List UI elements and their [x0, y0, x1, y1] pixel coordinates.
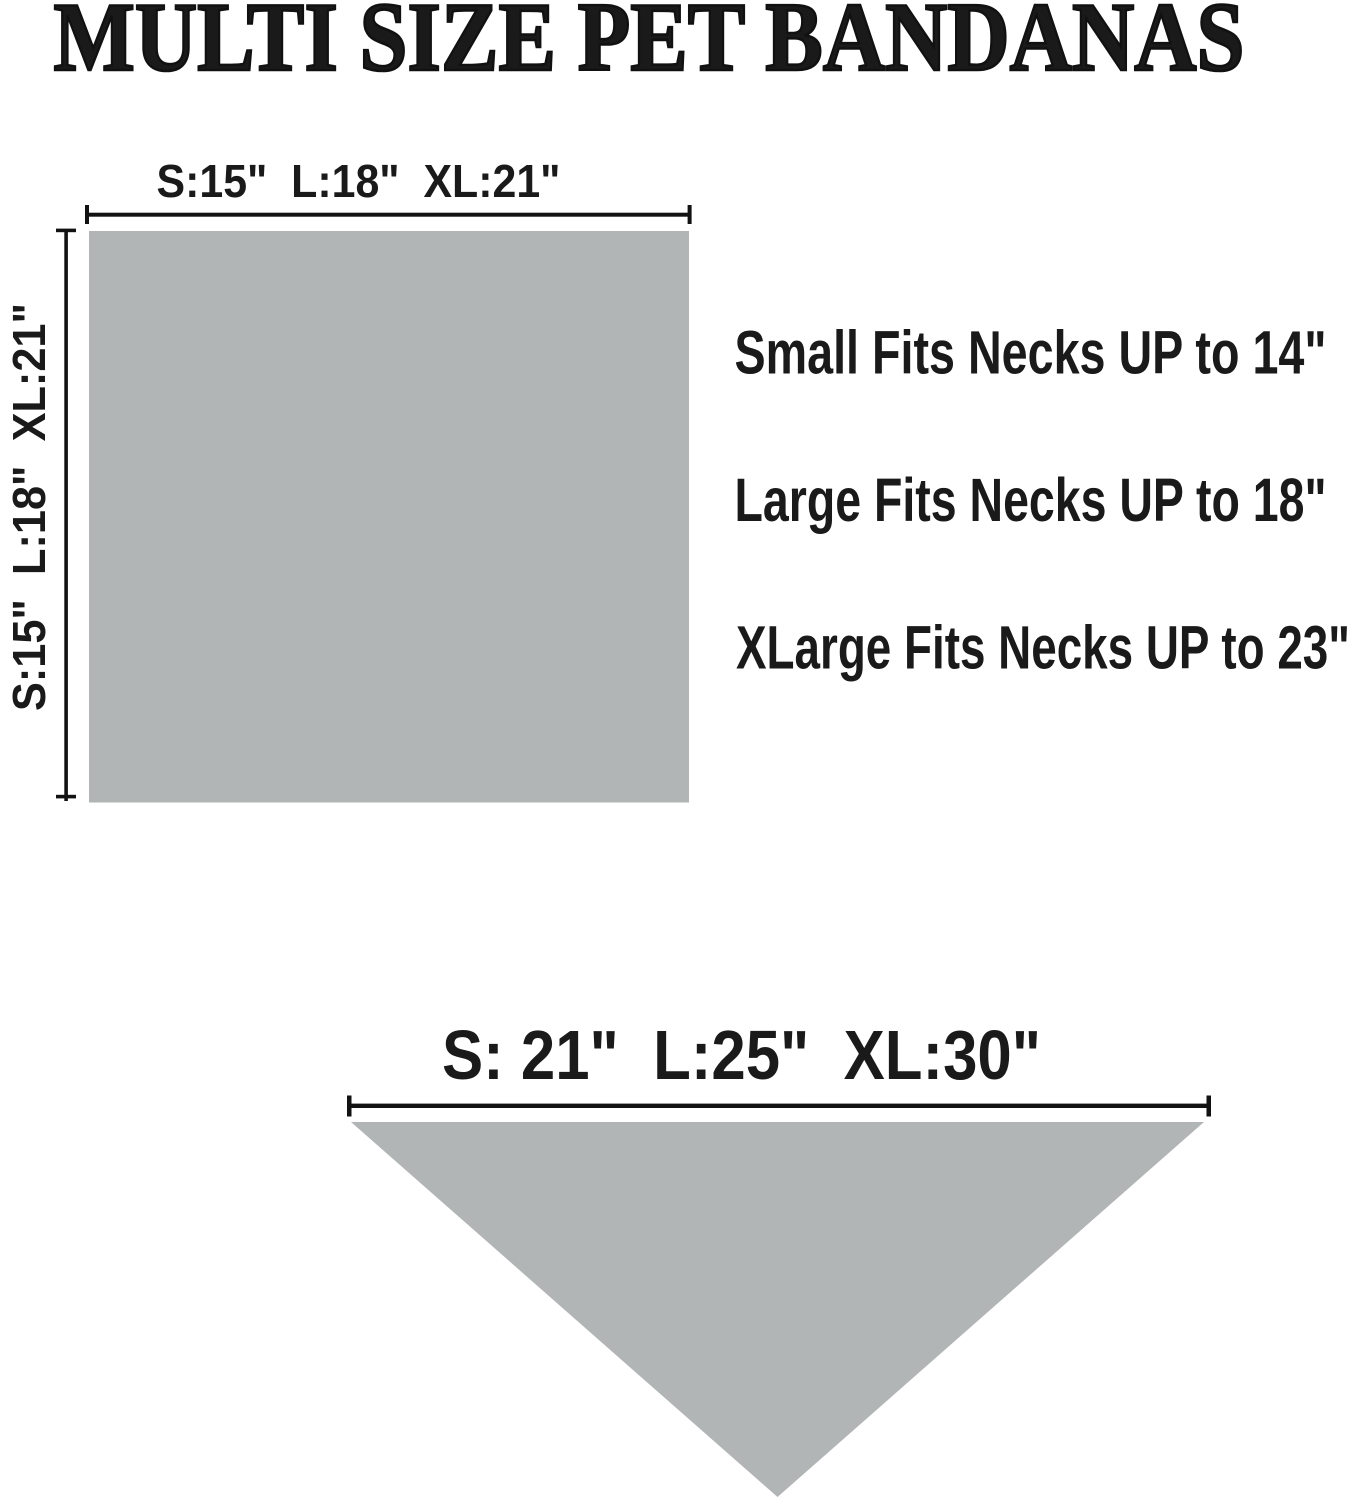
svg-text:S:15" L:18" XL:21": S:15" L:18" XL:21" — [157, 155, 561, 207]
svg-text:S:15" L:18" XL:21": S:15" L:18" XL:21" — [3, 303, 55, 711]
svg-text:S: 21" L:25" XL:30": S: 21" L:25" XL:30" — [442, 1016, 1041, 1094]
svg-text:Small Fits Necks UP to 14": Small Fits Necks UP to 14" — [735, 318, 1327, 387]
svg-text:Large Fits Necks UP to 18": Large Fits Necks UP to 18" — [735, 466, 1327, 535]
svg-text:MULTI SIZE PET BANDANAS: MULTI SIZE PET BANDANAS — [54, 0, 1245, 92]
svg-text:XLarge Fits Necks UP to 23": XLarge Fits Necks UP to 23" — [736, 613, 1350, 682]
